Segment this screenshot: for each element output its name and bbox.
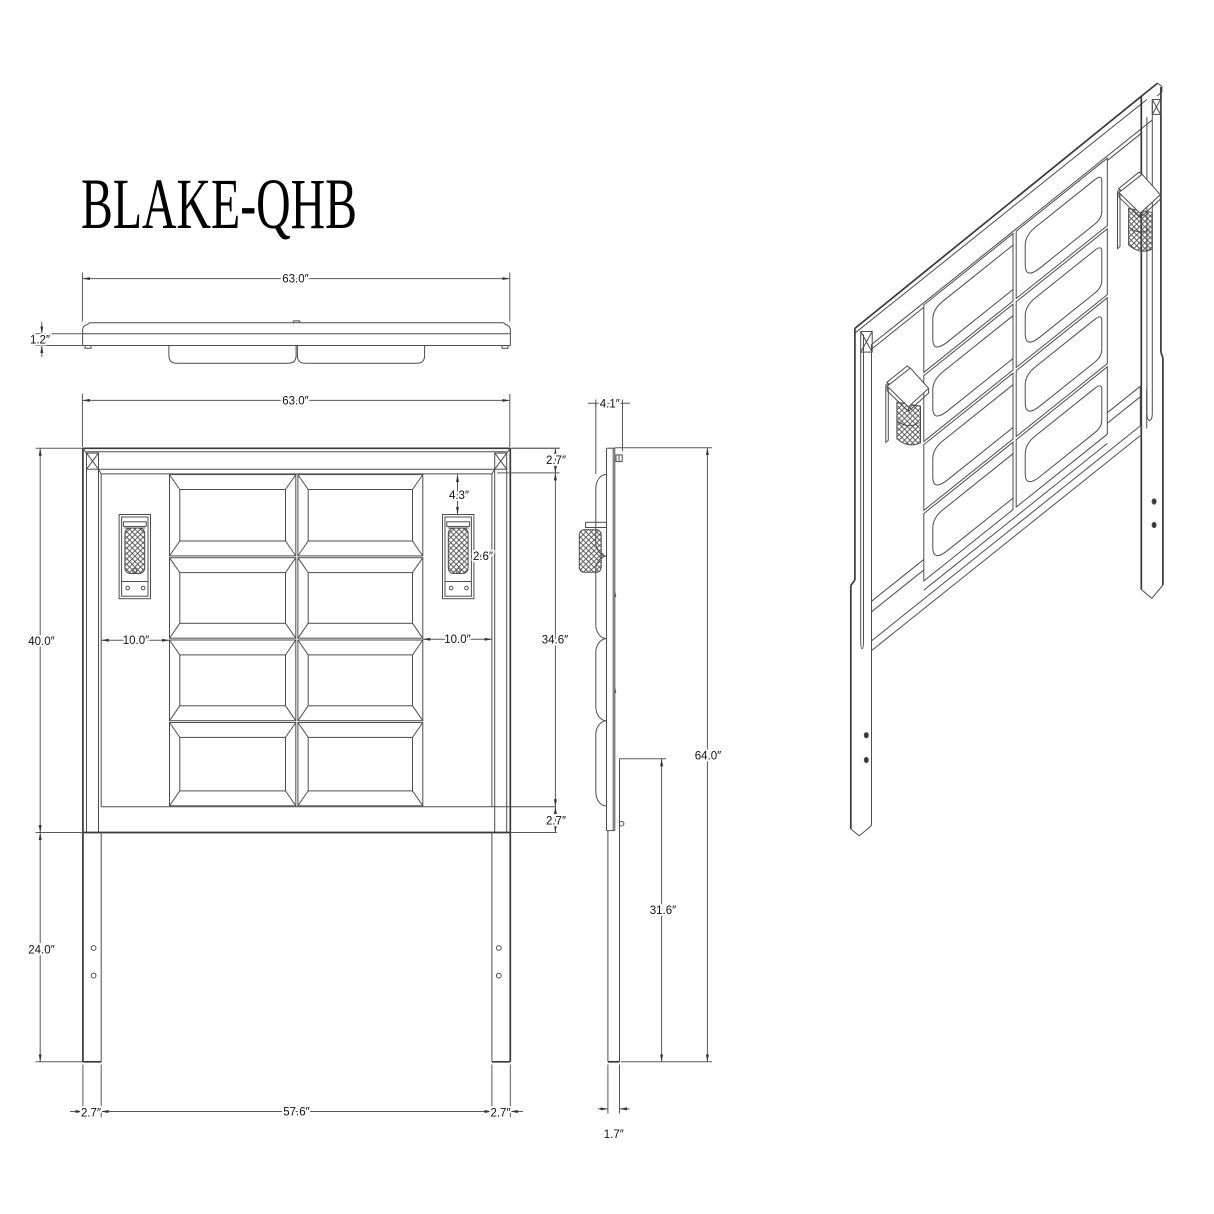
svg-text:1.2″: 1.2″ <box>30 334 50 346</box>
svg-text:64.0″: 64.0″ <box>695 751 721 763</box>
svg-text:24.0″: 24.0″ <box>28 945 54 957</box>
svg-text:2.7″: 2.7″ <box>490 1107 510 1119</box>
svg-text:63.0″: 63.0″ <box>282 395 308 407</box>
svg-text:2.7″: 2.7″ <box>81 1107 101 1119</box>
svg-text:31.6″: 31.6″ <box>650 905 676 917</box>
svg-text:57.6″: 57.6″ <box>283 1107 309 1119</box>
svg-text:2.7″: 2.7″ <box>546 816 566 828</box>
svg-text:BLAKE-QHB: BLAKE-QHB <box>81 164 357 244</box>
svg-text:2.7″: 2.7″ <box>546 455 566 467</box>
svg-text:34.6″: 34.6″ <box>542 635 568 647</box>
svg-text:40.0″: 40.0″ <box>28 636 54 648</box>
svg-text:10.0″: 10.0″ <box>444 634 470 646</box>
svg-text:1.7″: 1.7″ <box>604 1129 624 1141</box>
svg-text:10.0″: 10.0″ <box>123 635 149 647</box>
svg-text:63.0″: 63.0″ <box>282 274 308 286</box>
svg-text:2.6″: 2.6″ <box>473 551 493 563</box>
svg-text:4.3″: 4.3″ <box>449 490 469 502</box>
svg-text:4.1″: 4.1″ <box>600 399 620 411</box>
